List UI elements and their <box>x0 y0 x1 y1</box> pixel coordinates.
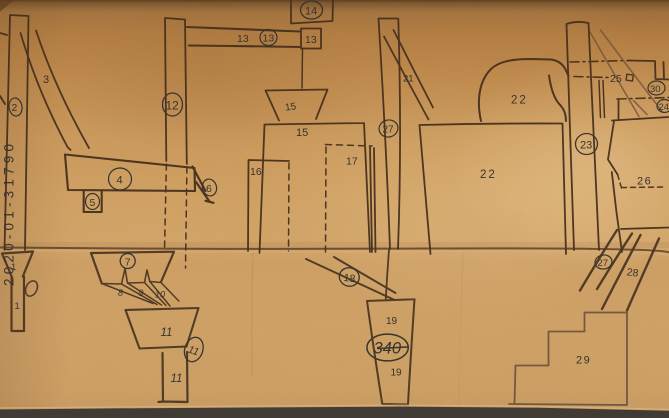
svg-text:16: 16 <box>250 166 262 178</box>
svg-text:30: 30 <box>650 84 661 95</box>
svg-text:28: 28 <box>626 266 639 280</box>
svg-text:13: 13 <box>263 33 275 45</box>
svg-text:27: 27 <box>383 125 395 136</box>
svg-text:22: 22 <box>511 95 528 107</box>
svg-text:10: 10 <box>155 290 165 300</box>
svg-text:3: 3 <box>43 74 49 86</box>
svg-text:13: 13 <box>305 34 317 46</box>
svg-text:14: 14 <box>305 6 317 18</box>
svg-text:27: 27 <box>598 258 609 269</box>
svg-text:11: 11 <box>171 373 183 385</box>
svg-text:1: 1 <box>11 262 16 273</box>
svg-text:15: 15 <box>284 101 297 114</box>
svg-text:24: 24 <box>659 102 669 113</box>
svg-text:19: 19 <box>386 316 398 327</box>
svg-text:29: 29 <box>576 355 591 367</box>
svg-text:1: 1 <box>15 301 20 312</box>
svg-text:6: 6 <box>206 183 212 195</box>
svg-text:17: 17 <box>346 156 358 168</box>
svg-text:22: 22 <box>480 169 497 181</box>
svg-text:25: 25 <box>610 73 622 85</box>
svg-text:18: 18 <box>343 272 356 286</box>
svg-text:4: 4 <box>117 175 123 187</box>
svg-text:2: 2 <box>12 102 18 114</box>
svg-text:21: 21 <box>403 74 414 85</box>
svg-text:8: 8 <box>118 288 123 298</box>
svg-text:23: 23 <box>580 140 592 152</box>
svg-text:15: 15 <box>296 127 308 139</box>
svg-text:7: 7 <box>125 257 131 269</box>
svg-text:13: 13 <box>237 33 249 45</box>
svg-text:12: 12 <box>166 99 180 113</box>
svg-text:9: 9 <box>139 288 144 298</box>
svg-text:19: 19 <box>391 368 403 379</box>
svg-text:5: 5 <box>90 197 96 209</box>
svg-text:26: 26 <box>637 176 652 188</box>
svg-text:11: 11 <box>161 327 173 339</box>
